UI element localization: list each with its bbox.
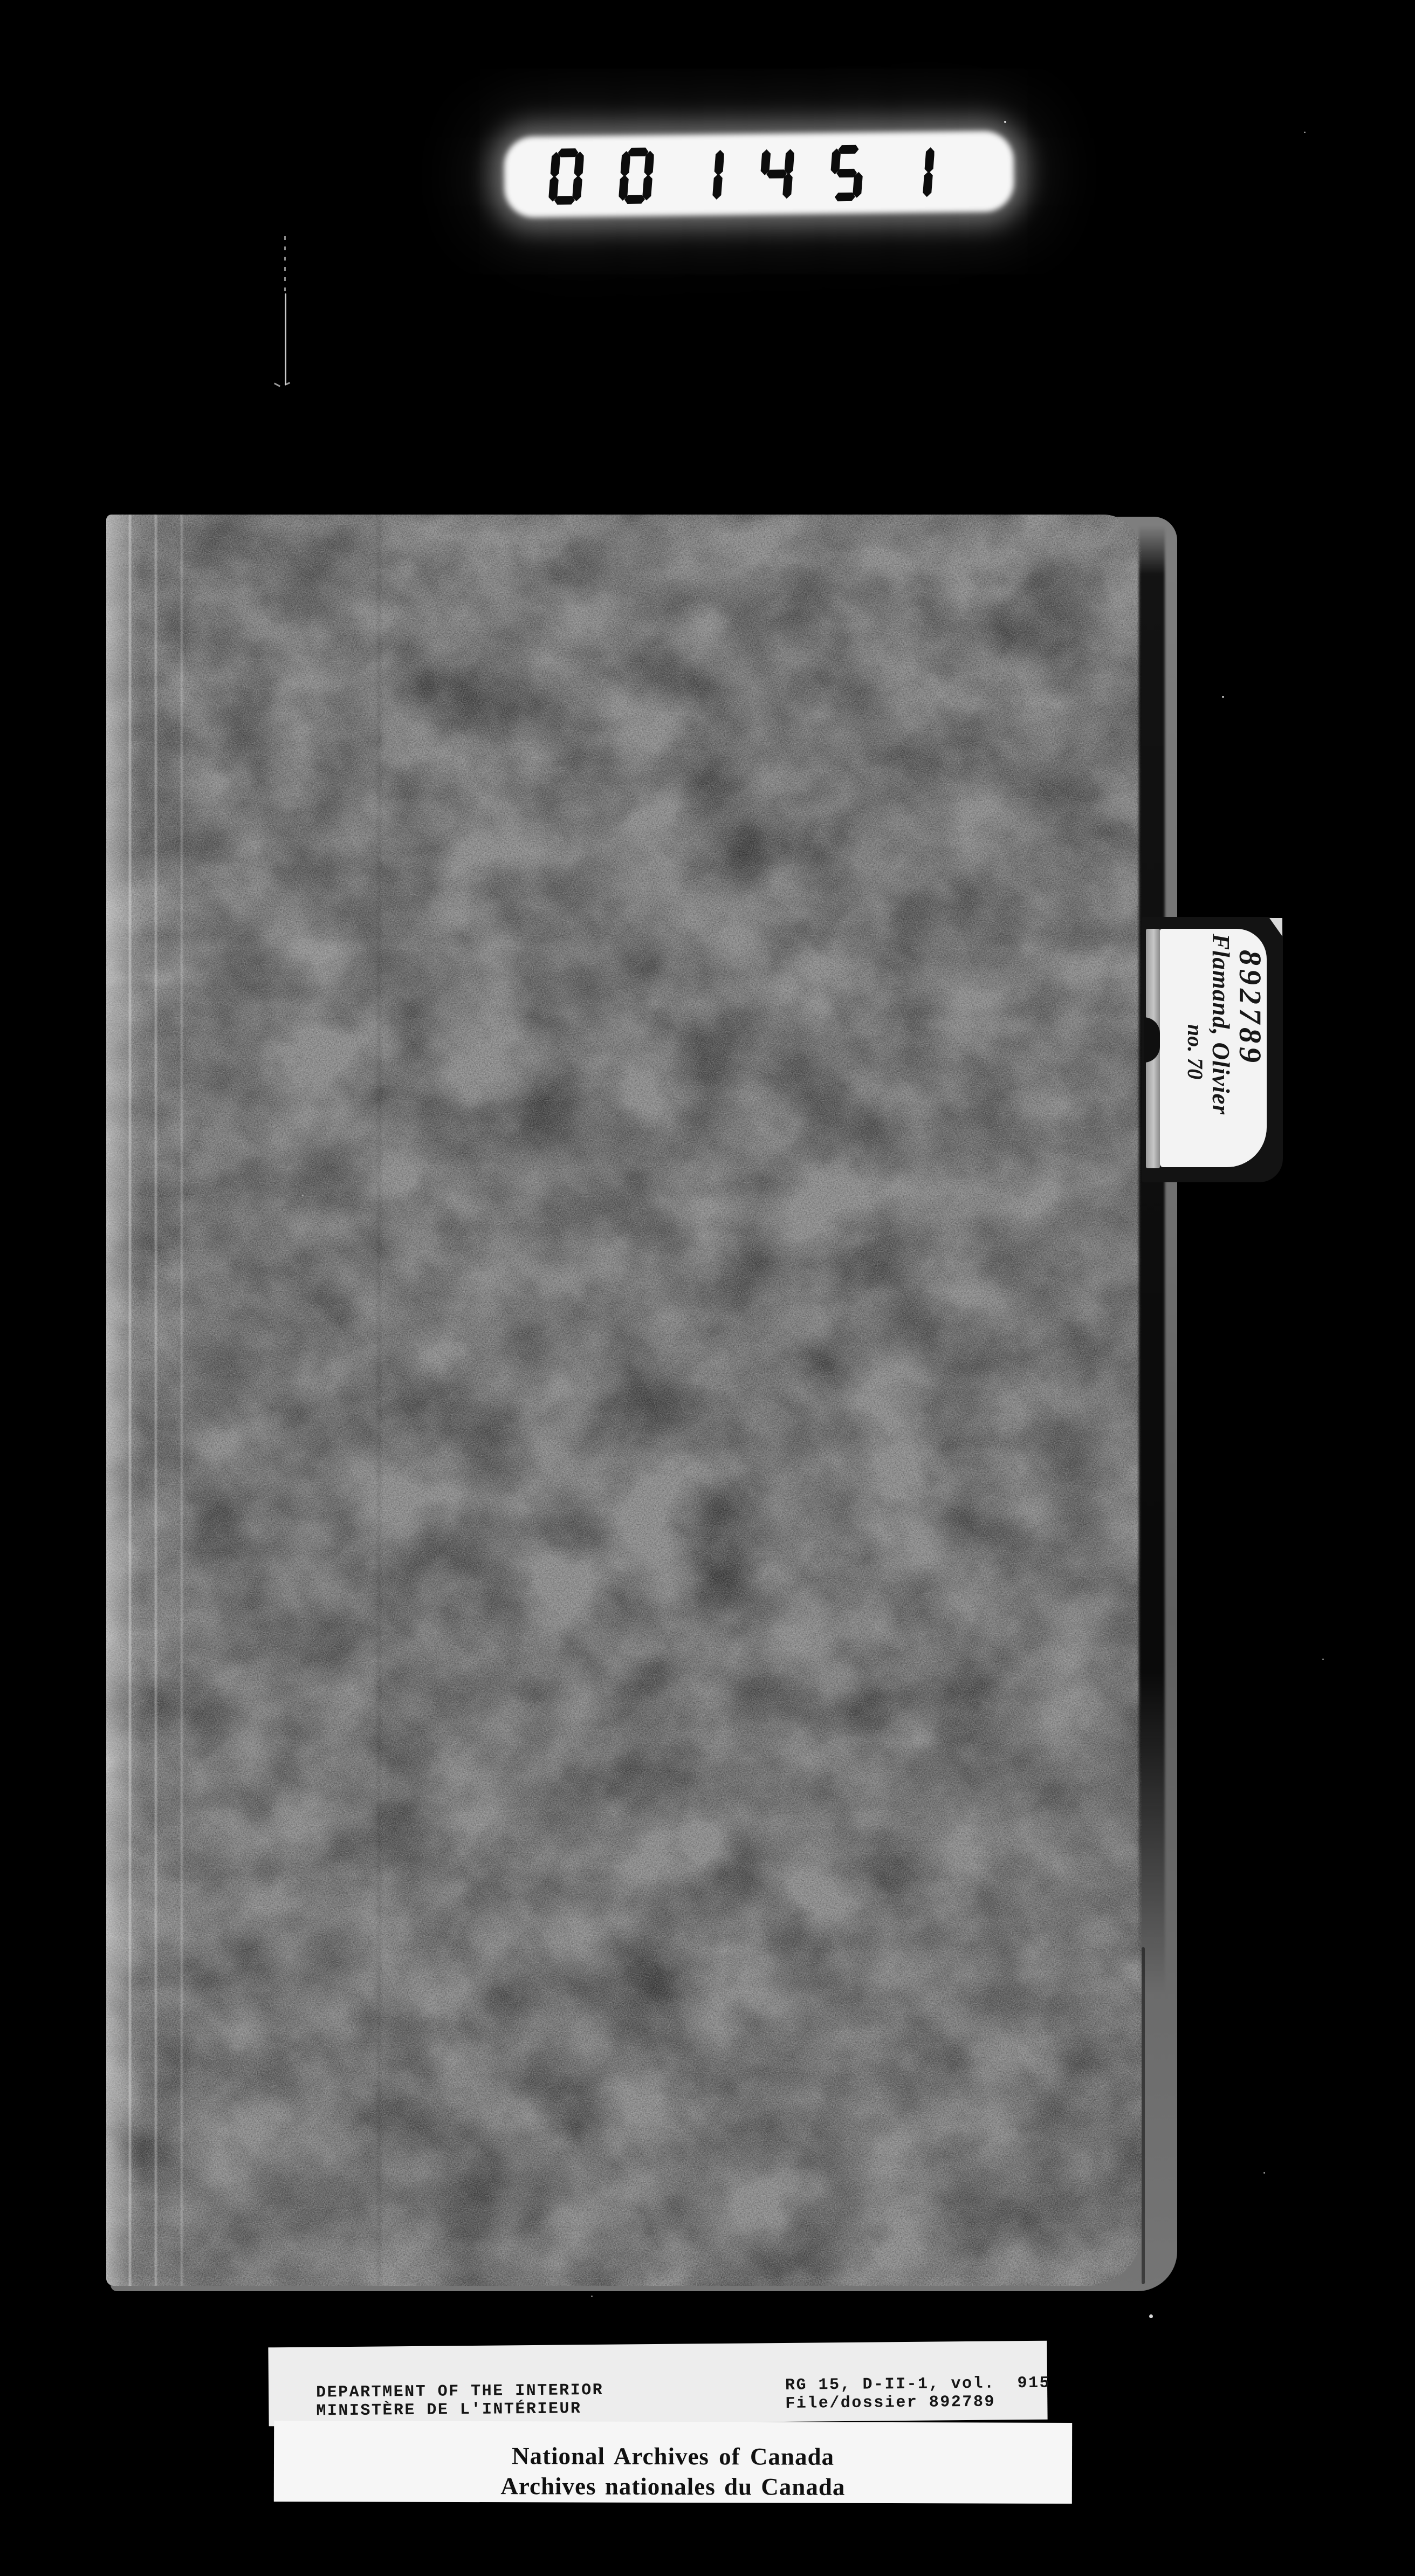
film-frame-counter — [504, 131, 1014, 218]
dust-speck — [1004, 121, 1006, 123]
counter-digit — [688, 145, 724, 205]
archives-name-fr: Archives nationales du Canada — [274, 2471, 1072, 2502]
dust-speck — [591, 2296, 593, 2297]
folder-crease — [128, 515, 132, 2286]
counter-digits-display — [548, 142, 935, 207]
tab-paper-label: 892789 Flamand, Olivier no. 70 — [1160, 929, 1267, 1167]
counter-digit — [898, 142, 935, 202]
tab-note: no. 70 — [1184, 931, 1207, 1164]
film-scratch-artifact — [274, 382, 280, 387]
tab-file-number: 892789 — [1234, 931, 1266, 1164]
folder-edge-crease — [1142, 1947, 1145, 2284]
folder-spine-highlight — [106, 515, 143, 2286]
tab-person-name: Flamand, Olivier — [1207, 931, 1234, 1164]
dust-speck — [1263, 2172, 1265, 2174]
dust-speck — [1322, 1659, 1324, 1660]
folder-crease — [154, 515, 158, 2286]
file-folder-cover — [106, 515, 1142, 2286]
dust-speck — [1149, 2314, 1153, 2318]
counter-digit — [828, 143, 864, 203]
department-name-fr: MINISTÈRE DE L'INTÉRIEUR — [316, 2400, 581, 2420]
national-archives-label: National Archives of Canada Archives nat… — [274, 2421, 1072, 2504]
folder-highlight-band — [106, 941, 851, 984]
archives-name-en: National Archives of Canada — [274, 2441, 1072, 2471]
counter-digit — [548, 147, 584, 207]
counter-digit — [618, 146, 654, 205]
folder-index-tab: 892789 Flamand, Olivier no. 70 — [1142, 917, 1283, 1182]
tab-handwritten-text: 892789 Flamand, Olivier no. 70 — [1160, 931, 1266, 1164]
archive-reference-label: DEPARTMENT OF THE INTERIOR MINISTÈRE DE … — [268, 2341, 1047, 2427]
department-name-en: DEPARTMENT OF THE INTERIOR — [316, 2381, 603, 2402]
folder-edge-shadow — [1139, 526, 1165, 1993]
dust-speck — [302, 1195, 304, 1196]
counter-digit — [758, 144, 794, 204]
paper-texture — [106, 515, 1142, 2286]
dust-speck — [1222, 696, 1224, 698]
film-scratch-artifact — [284, 236, 286, 294]
record-group-reference: RG 15, D-II-1, vol. 915 — [785, 2374, 1050, 2395]
dust-speck — [1304, 132, 1306, 133]
folder-crease — [375, 515, 383, 2286]
file-dossier-number: File/dossier 892789 — [785, 2393, 995, 2413]
tab-corner-highlight — [1269, 918, 1282, 936]
folder-crease — [180, 515, 184, 2286]
microfilm-scan-frame: 892789 Flamand, Olivier no. 70 DEPARTMEN… — [0, 0, 1415, 2576]
film-scratch-artifact — [285, 293, 286, 385]
